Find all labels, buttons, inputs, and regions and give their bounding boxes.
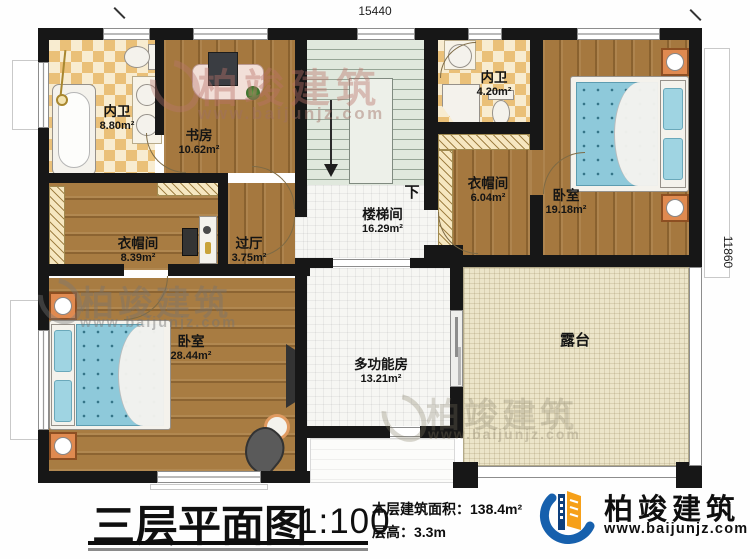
room-label-stairwell: 楼梯间 16.29m² — [340, 207, 425, 236]
room-area: 8.80m² — [77, 120, 157, 133]
bed1-pillow-1 — [54, 330, 72, 372]
room-name: 过厅 — [209, 236, 289, 252]
wall-right — [689, 28, 702, 267]
dimension-tick-left — [113, 7, 125, 19]
room-label-hallway: 过厅 3.75m² — [209, 236, 289, 265]
wall-closet1-south-a — [38, 264, 124, 276]
bed2-blanket — [614, 82, 658, 186]
room-name: 露台 — [545, 332, 605, 350]
hall-door-gap-floor — [295, 217, 307, 258]
sliding-door-leaf — [458, 347, 461, 385]
room-area: 16.29m² — [340, 223, 425, 236]
nightstand-bed2-bottom — [661, 194, 689, 222]
room-label-bathroom2: 内卫 4.20m² — [454, 70, 534, 99]
window-top-5 — [577, 28, 660, 40]
wall-bath2-south — [438, 122, 532, 134]
sliding-glass-door — [450, 310, 463, 387]
floor-height-text: 层高：3.3m — [372, 522, 446, 542]
nightstand-ring — [666, 53, 684, 71]
stair-down-label: 下 — [400, 184, 424, 202]
wall-stair-west-lower — [295, 258, 307, 471]
bed1-pillow-2 — [54, 380, 72, 422]
stair-arrow-head — [324, 164, 338, 177]
toilet1-bowl — [124, 46, 150, 68]
room-area: 8.39m² — [98, 252, 178, 265]
title-underline-thick — [88, 541, 368, 545]
dimension-right: 11860 — [721, 224, 735, 280]
window-top-2 — [193, 28, 268, 40]
room-name: 楼梯间 — [340, 207, 425, 223]
wall-bath1-south — [38, 173, 228, 183]
room-area: 13.21m² — [331, 373, 431, 386]
room-label-terrace: 露台 — [545, 332, 605, 350]
brand-logo-icon — [536, 486, 598, 544]
room-name: 多功能房 — [331, 357, 431, 373]
window-top-1 — [103, 28, 150, 40]
computer-monitor — [208, 52, 238, 86]
plant — [246, 86, 260, 100]
brand-website: www.baijunjz.com — [604, 521, 748, 537]
nightstand-ring — [666, 199, 684, 217]
dimension-tick-right — [689, 9, 701, 21]
floor-plan-page: 15440 11860 内卫 8.80m² 书房 10.62m² 内卫 4.20… — [0, 0, 750, 559]
dresser-stool — [203, 226, 211, 234]
terrace-post-left — [453, 462, 478, 488]
terrace-railing-bottom — [478, 466, 676, 478]
room-area: 3.75m² — [209, 252, 289, 265]
shower-head-icon — [56, 94, 68, 106]
room-label-closet2: 衣帽间 6.04m² — [448, 176, 528, 205]
exterior-sill-left-top — [12, 60, 39, 130]
title-underline-thin — [88, 548, 368, 551]
eaves-strip — [310, 438, 455, 483]
room-area: 19.18m² — [526, 204, 606, 217]
window-left-1 — [38, 62, 49, 128]
room-label-bedroom1: 卧室 28.44m² — [151, 334, 231, 363]
window-top-4 — [468, 28, 502, 40]
terrace-railing-right — [689, 267, 702, 466]
stair-arrow-line — [330, 100, 332, 164]
room-area: 10.62m² — [159, 144, 239, 157]
room-name: 卧室 — [526, 188, 606, 204]
stair-landing-rail — [349, 78, 393, 184]
room-name: 衣帽间 — [98, 236, 178, 252]
multiroom-floor — [307, 268, 450, 426]
room-area: 4.20m² — [454, 86, 534, 99]
window-top-3 — [357, 28, 415, 40]
room-name: 内卫 — [77, 104, 157, 120]
bed2-pillow-1 — [663, 88, 683, 130]
nightstand-ring — [54, 437, 72, 455]
wall-multi-east-a — [450, 268, 463, 310]
room-label-bathroom1: 内卫 8.80m² — [77, 104, 157, 133]
room-area: 6.04m² — [448, 192, 528, 205]
terrace-floor — [463, 267, 689, 466]
room-name: 衣帽间 — [448, 176, 528, 192]
exterior-sill-bottom — [150, 484, 268, 490]
wall-bed2-south — [424, 255, 702, 267]
wall-multi-north-a — [307, 258, 333, 268]
room-name: 内卫 — [454, 70, 534, 86]
closet1-shelf-left — [49, 186, 65, 266]
closet2-shelf-top — [438, 134, 530, 150]
wall-stair-east — [424, 28, 438, 210]
brand-logo-svg — [536, 486, 598, 544]
room-name: 书房 — [159, 128, 239, 144]
dimension-top: 15440 — [340, 4, 410, 18]
wall-stair-west-upper — [295, 28, 307, 217]
bed2-pillow-2 — [663, 138, 683, 180]
wall-closet1-south-b — [168, 264, 310, 276]
wall-multi-north-b — [410, 258, 463, 268]
window-bottom-1 — [157, 471, 261, 483]
floor-area-text: 本层建筑面积：138.4m² — [372, 499, 522, 519]
room-label-multiroom: 多功能房 13.21m² — [331, 357, 431, 386]
room-label-bedroom2: 卧室 19.18m² — [526, 188, 606, 217]
room-label-closet1: 衣帽间 8.39m² — [98, 236, 178, 265]
room-label-study: 书房 10.62m² — [159, 128, 239, 157]
nightstand-bed1-bottom — [49, 432, 77, 460]
dresser — [182, 228, 198, 256]
window-left-2 — [38, 330, 49, 430]
exterior-sill-left-bottom — [10, 300, 39, 440]
multiroom-north-opening — [333, 259, 410, 267]
wall-multi-south-a — [307, 426, 390, 438]
nightstand-bed2-top — [661, 48, 689, 76]
room-area: 28.44m² — [151, 350, 231, 363]
room-name: 卧室 — [151, 334, 231, 350]
